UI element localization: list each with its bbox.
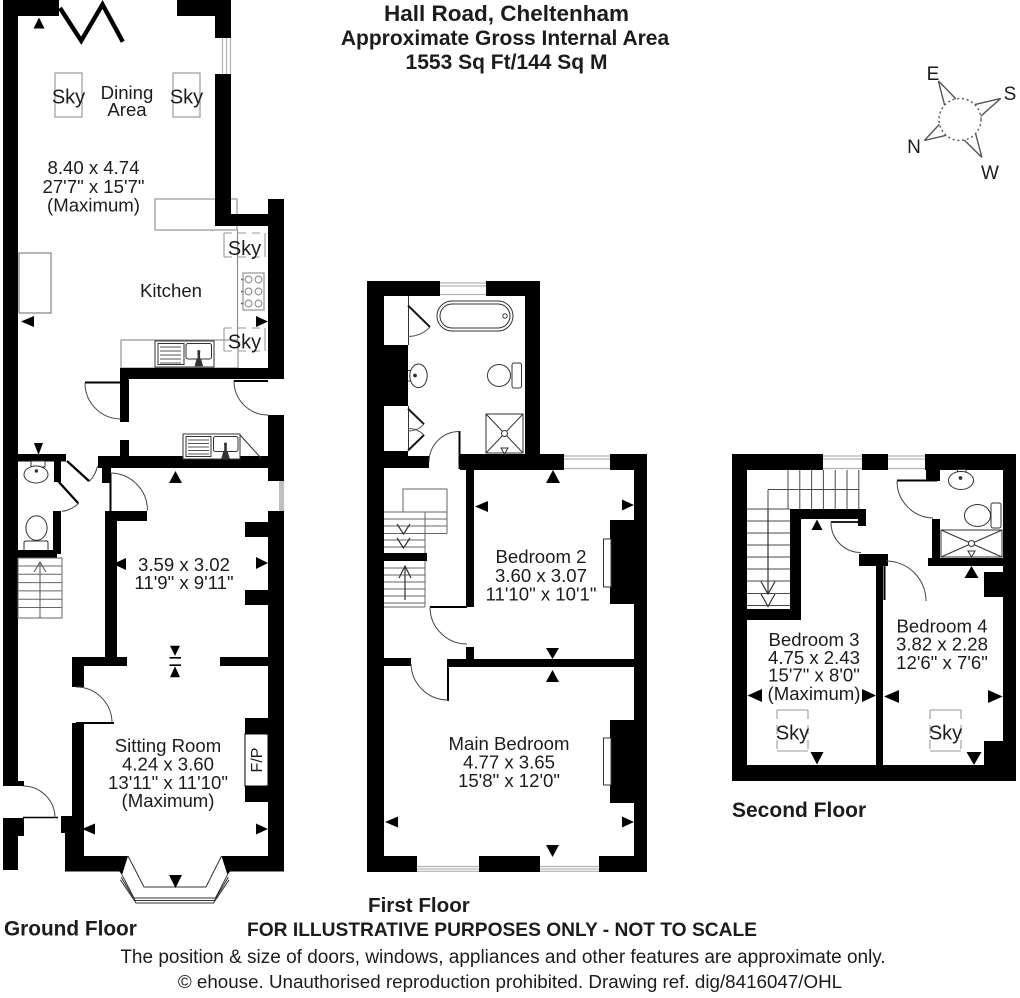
svg-text:11'10" x 10'1": 11'10" x 10'1" — [486, 584, 597, 605]
svg-text:12'6" x 7'6": 12'6" x 7'6" — [896, 652, 988, 673]
svg-text:11'9" x 9'11": 11'9" x 9'11" — [134, 572, 233, 593]
svg-text:(Maximum): (Maximum) — [768, 683, 861, 704]
svg-text:Sky: Sky — [228, 238, 261, 260]
svg-text:First Floor: First Floor — [368, 894, 470, 917]
svg-text:Sky: Sky — [170, 87, 203, 109]
svg-text:Area: Area — [107, 99, 147, 120]
svg-text:Bedroom 2: Bedroom 2 — [496, 546, 587, 567]
svg-text:© ehouse. Unauthorised reprodu: © ehouse. Unauthorised reproduction proh… — [178, 971, 842, 992]
svg-text:Sky: Sky — [776, 723, 809, 745]
svg-text:N: N — [907, 137, 921, 158]
svg-text:S: S — [1004, 84, 1017, 105]
svg-text:Sky: Sky — [228, 332, 261, 354]
svg-text:FOR ILLUSTRATIVE PURPOSES ONLY: FOR ILLUSTRATIVE PURPOSES ONLY - NOT TO … — [247, 920, 757, 941]
svg-text:(Maximum): (Maximum) — [47, 194, 140, 215]
svg-text:Sky: Sky — [52, 87, 85, 109]
svg-text:W: W — [981, 163, 999, 184]
svg-text:Second Floor: Second Floor — [732, 799, 866, 822]
svg-text:Ground Floor: Ground Floor — [4, 918, 137, 941]
svg-text:F/P: F/P — [249, 748, 266, 773]
svg-text:15'8" x 12'0": 15'8" x 12'0" — [458, 770, 560, 791]
svg-text:(Maximum): (Maximum) — [122, 790, 215, 811]
svg-text:Approximate Gross Internal Are: Approximate Gross Internal Area — [341, 27, 670, 50]
svg-text:Sky: Sky — [929, 723, 962, 745]
svg-text:1553 Sq Ft/144 Sq M: 1553 Sq Ft/144 Sq M — [406, 51, 608, 74]
svg-text:Hall Road, Cheltenham: Hall Road, Cheltenham — [384, 1, 629, 26]
svg-text:Kitchen: Kitchen — [140, 280, 202, 301]
svg-text:The position & size of doors,: The position & size of doors, windows, a… — [120, 947, 885, 968]
svg-text:E: E — [927, 64, 940, 85]
